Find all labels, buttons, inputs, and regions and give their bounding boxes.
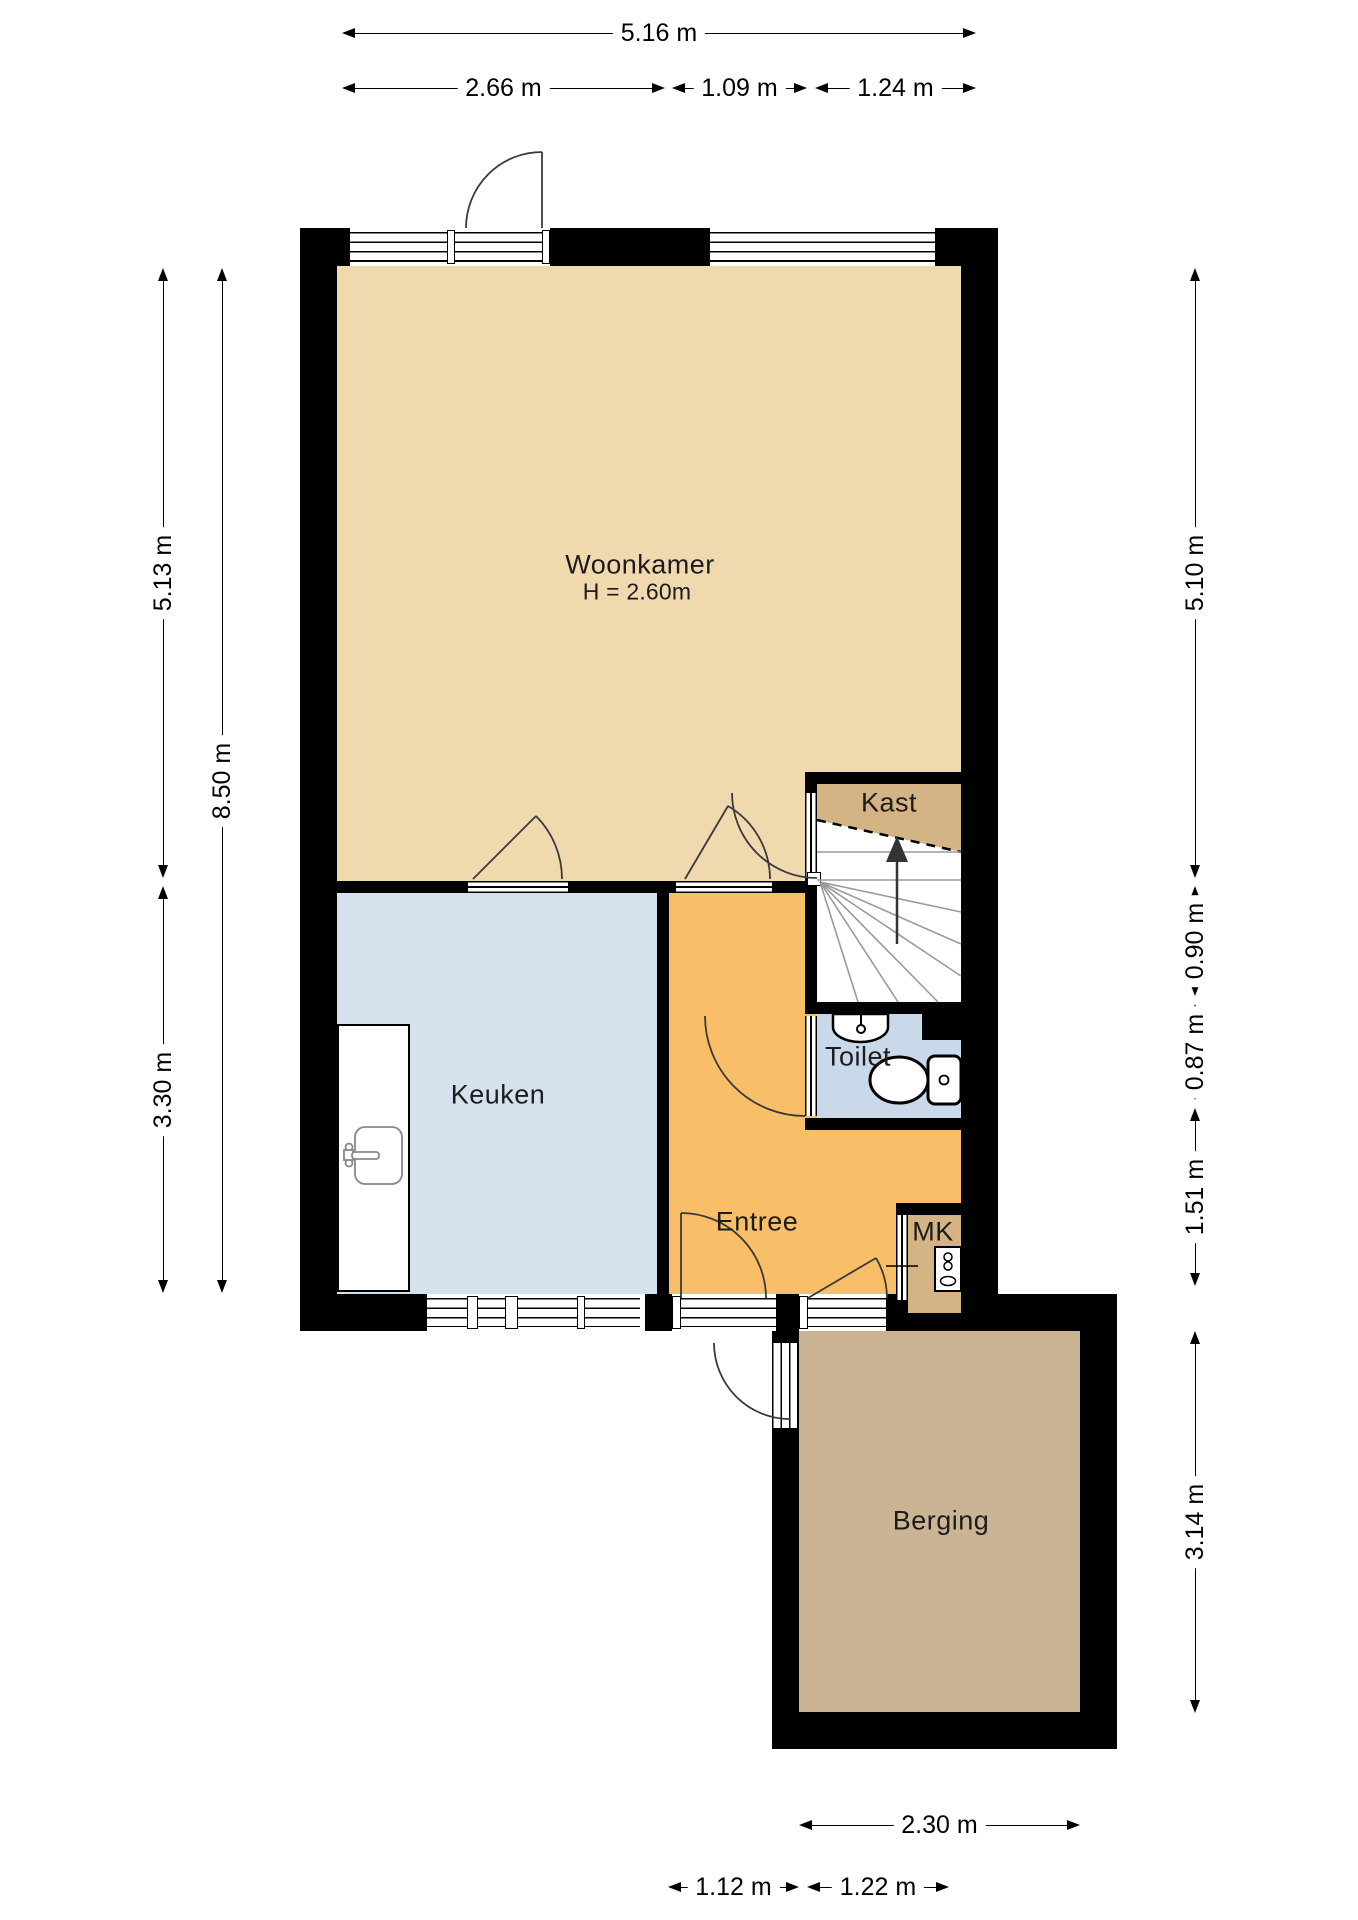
arrow-icon bbox=[217, 1280, 227, 1293]
arrow-icon bbox=[158, 1280, 168, 1293]
arrow-icon bbox=[1190, 1700, 1200, 1713]
dimension-bottom-1: 1.12 m bbox=[668, 1880, 799, 1894]
label-kast: Kast bbox=[861, 788, 917, 819]
arrow-icon bbox=[1067, 1820, 1080, 1830]
dimension-left-lower: 3.30 m bbox=[156, 886, 170, 1293]
arrow-icon bbox=[936, 1882, 949, 1892]
toilet-door-swing bbox=[705, 1016, 805, 1116]
dimension-top-total: 5.16 m bbox=[342, 26, 976, 40]
meter-panel bbox=[886, 1247, 961, 1291]
label-mk: MK bbox=[912, 1217, 954, 1248]
dimension-right-4: 1.51 m bbox=[1188, 1108, 1202, 1286]
label-keuken: Keuken bbox=[451, 1080, 546, 1111]
dimension-top-3: 1.24 m bbox=[815, 81, 976, 95]
dimension-right-3: 0.87 m bbox=[1188, 1004, 1202, 1100]
berging-inner-door-swing bbox=[808, 1258, 887, 1298]
keuken-door-swing bbox=[473, 816, 562, 879]
arrow-icon bbox=[1190, 865, 1200, 878]
floorplan-canvas: Woonkamer H = 2.60m Keuken Entree Toilet… bbox=[0, 0, 1358, 1920]
staircase bbox=[817, 852, 961, 1002]
dimension-top-2: 1.09 m bbox=[672, 81, 807, 95]
dimension-right-5: 3.14 m bbox=[1188, 1331, 1202, 1713]
arrow-icon bbox=[1190, 1273, 1200, 1286]
label-berging: Berging bbox=[893, 1506, 990, 1537]
dimension-bottom-total: 2.30 m bbox=[799, 1818, 1080, 1832]
dimension-right-2: 0.90 m bbox=[1188, 886, 1202, 996]
label-woonkamer-height: H = 2.60m bbox=[583, 579, 692, 606]
label-entree: Entree bbox=[716, 1207, 799, 1238]
arrow-icon bbox=[158, 865, 168, 878]
label-woonkamer: Woonkamer bbox=[565, 550, 715, 581]
dimension-top-1: 2.66 m bbox=[342, 81, 665, 95]
kitchen-sink bbox=[344, 1127, 402, 1184]
arrow-icon bbox=[963, 83, 976, 93]
entree-door-swing bbox=[685, 806, 770, 879]
dimension-left-upper: 5.13 m bbox=[156, 268, 170, 878]
dimension-left-total: 8.50 m bbox=[215, 268, 229, 1293]
berging-side-door-swing bbox=[714, 1343, 790, 1419]
arrow-icon bbox=[652, 83, 665, 93]
hand-basin bbox=[833, 1014, 888, 1042]
arrow-icon bbox=[963, 28, 976, 38]
dimension-right-1: 5.10 m bbox=[1188, 268, 1202, 878]
dimension-bottom-2: 1.22 m bbox=[807, 1880, 949, 1894]
balcony-door-swing bbox=[466, 152, 542, 228]
stair-door-swing bbox=[732, 793, 817, 878]
arrow-icon bbox=[794, 83, 807, 93]
label-toilet: Toilet bbox=[825, 1042, 891, 1073]
arrow-icon bbox=[786, 1882, 799, 1892]
